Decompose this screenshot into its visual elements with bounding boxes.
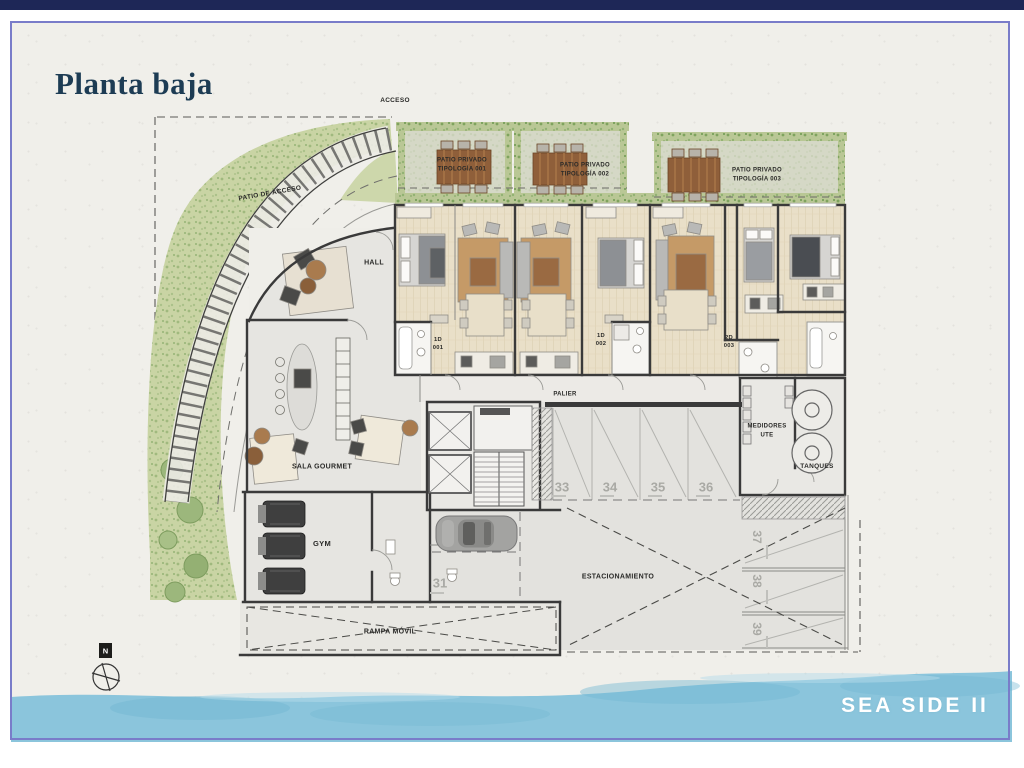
unit-003-label: 2D 003 xyxy=(724,335,735,351)
parking-spot-39: 39 xyxy=(750,622,764,635)
parking-spot-38: 38 xyxy=(750,574,764,587)
parking-spot-36: 36 xyxy=(699,480,713,495)
rampa-movil-label: RAMPA MÓVIL xyxy=(364,628,416,639)
parking-spot-33: 33 xyxy=(555,480,569,495)
acceso-label: ACCESO xyxy=(380,96,410,106)
tanques-label: TANQUES xyxy=(800,462,833,472)
palier-label: PALIER xyxy=(553,390,576,399)
medidores-ute-label: MEDIDORES UTE xyxy=(747,423,786,442)
unit-001-label: 1D 001 xyxy=(433,337,444,353)
parking-spot-31: 31 xyxy=(433,576,447,591)
gym-label: GYM xyxy=(313,538,331,550)
compass-north-label: N xyxy=(103,646,108,655)
patio-de-acceso-label: PATIO DE ACCESO xyxy=(238,184,302,205)
hall-label: HALL xyxy=(364,259,384,270)
parking-spot-34: 34 xyxy=(603,480,617,495)
patio-privado-001-label: PATIO PRIVADO TIPOLOGÍA 001 xyxy=(437,157,487,176)
floor-plan-page: Planta baja ACCESO PATIO DE ACCESO PATIO… xyxy=(0,0,1024,768)
parking-spot-37: 37 xyxy=(750,530,764,543)
labels-layer: Planta baja ACCESO PATIO DE ACCESO PATIO… xyxy=(0,0,1024,768)
patio-privado-002-label: PATIO PRIVADO TIPOLOGÍA 002 xyxy=(560,162,610,181)
sala-gourmet-label: SALA GOURMET xyxy=(292,463,352,474)
page-title: Planta baja xyxy=(55,66,213,102)
estacionamiento-label: ESTACIONAMIENTO xyxy=(582,573,654,584)
parking-spot-35: 35 xyxy=(651,480,665,495)
patio-privado-003-label: PATIO PRIVADO TIPOLOGÍA 003 xyxy=(732,167,782,186)
unit-002-label: 1D 002 xyxy=(596,333,607,349)
project-name: SEA SIDE II xyxy=(841,694,989,718)
